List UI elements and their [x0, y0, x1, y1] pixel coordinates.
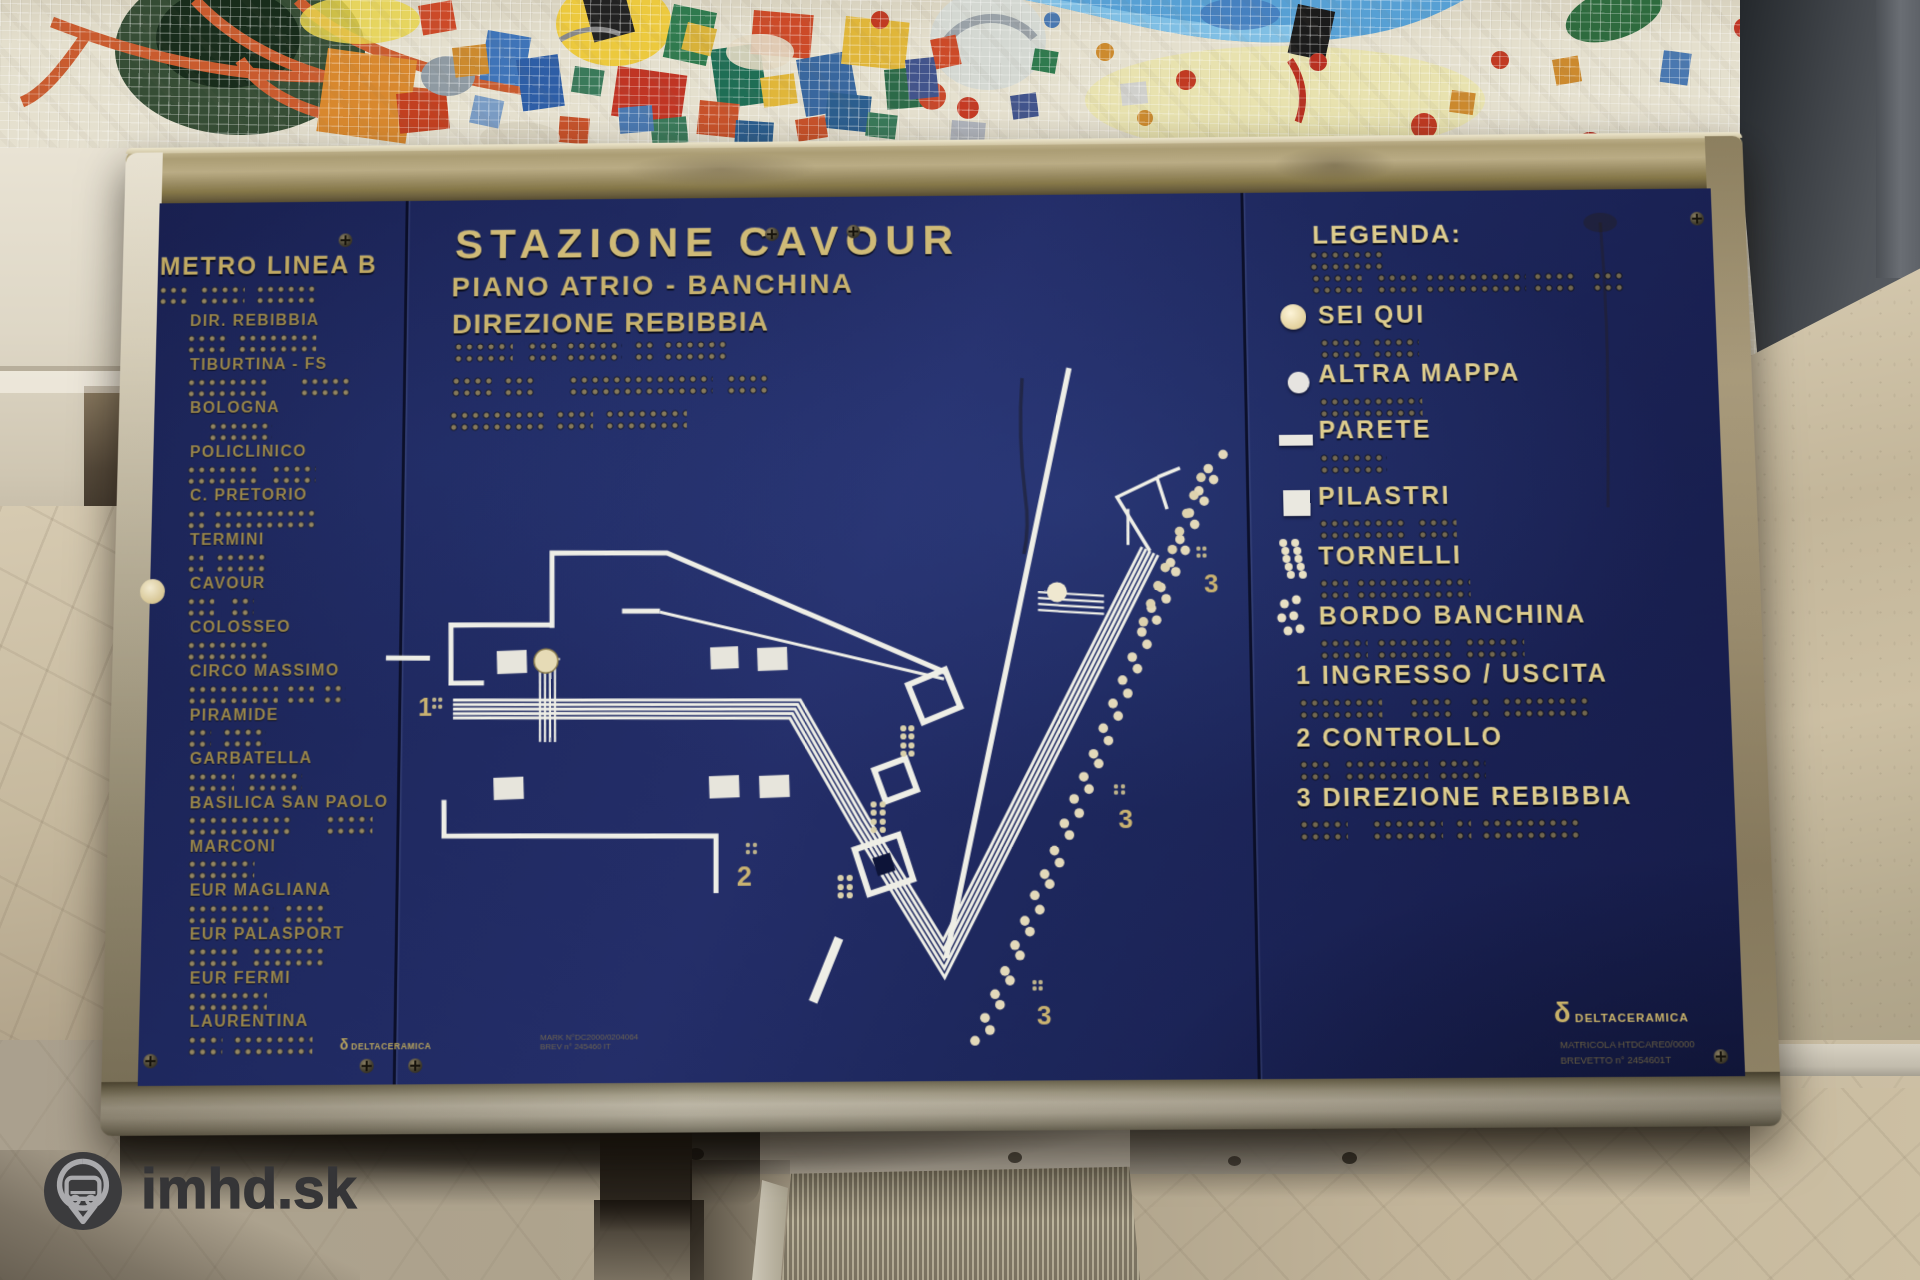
svg-text:3: 3	[1118, 805, 1133, 835]
svg-text:2: 2	[737, 860, 752, 892]
svg-text:3: 3	[1204, 570, 1219, 599]
svg-text:3: 3	[1037, 1001, 1052, 1031]
svg-text:1: 1	[418, 694, 432, 722]
